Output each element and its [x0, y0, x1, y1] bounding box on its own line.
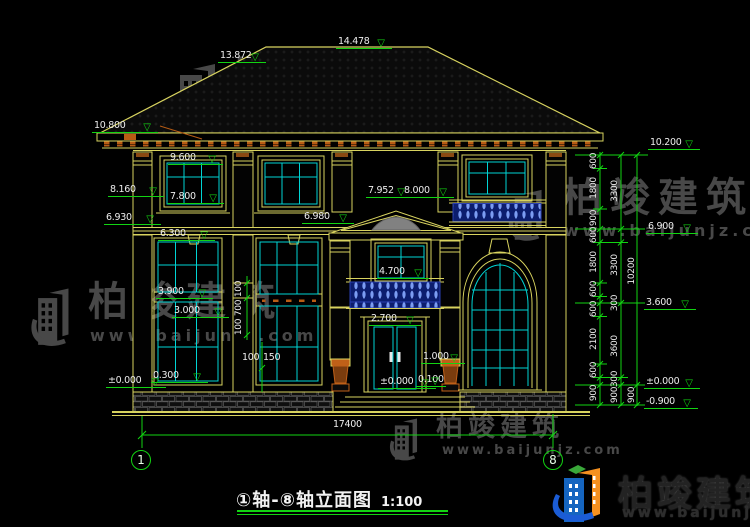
- elevation-marker: 4.700▽: [377, 259, 429, 279]
- level-triangle-icon: ▽: [683, 399, 691, 409]
- elevation-marker: ±0.000▽: [644, 369, 700, 389]
- baijun-color-logo-icon: [538, 464, 618, 526]
- elevation-drawing-canvas: 柏竣建筑 www.baijunjz.com 柏竣建筑 www.baijunjz.…: [0, 0, 750, 527]
- level-triangle-icon: ▽: [377, 39, 385, 49]
- dimension-label-vertical: 900: [627, 375, 637, 415]
- dimension-label-vertical: 300: [610, 283, 620, 323]
- level-triangle-icon: ▽: [339, 214, 347, 224]
- elevation-marker: 8.160▽: [108, 177, 164, 197]
- dimension-label-vertical: 100: [234, 307, 244, 347]
- elevation-marker: 6.900▽: [646, 214, 698, 234]
- elevation-marker: 2.700▽: [369, 306, 421, 326]
- elevation-marker: 13.872▽: [218, 43, 266, 63]
- level-triangle-icon: ▽: [414, 269, 422, 279]
- elevation-marker: 8.000▽: [402, 178, 454, 198]
- level-triangle-icon: ▽: [214, 308, 222, 318]
- title-underline: [237, 514, 448, 515]
- level-triangle-icon: ▽: [685, 140, 693, 150]
- level-triangle-icon: ▽: [251, 53, 259, 63]
- level-triangle-icon: ▽: [681, 300, 689, 310]
- dimension-label: 100: [242, 353, 259, 363]
- elevation-marker: 6.300▽: [158, 221, 215, 241]
- level-triangle-icon: ▽: [146, 215, 154, 225]
- elevation-marker: 3.600▽: [644, 290, 696, 310]
- elevation-marker: 10.800▽: [92, 113, 158, 133]
- brand-logo-url: www.baijunjz.com: [622, 505, 750, 521]
- elevation-marker: 7.800▽: [168, 184, 224, 204]
- dimension-label-vertical: 10200: [627, 251, 637, 291]
- dimension-label: 17400: [333, 420, 362, 430]
- level-triangle-icon: ▽: [439, 188, 447, 198]
- drawing-title-text: ①轴-⑧轴立面图: [236, 490, 372, 511]
- level-triangle-icon: ▽: [151, 378, 159, 388]
- dimension-label-vertical: 3300: [610, 171, 620, 211]
- elevation-marker: 6.930▽: [104, 205, 161, 225]
- elevation-marker: 9.600▽: [168, 145, 223, 165]
- level-triangle-icon: ▽: [208, 155, 216, 165]
- title-underline: [237, 510, 448, 512]
- elevation-marker: ±0.000▽: [106, 368, 166, 388]
- elevation-marker: 6.980▽: [302, 204, 354, 224]
- dimension-label-vertical: 3300: [610, 245, 620, 285]
- level-triangle-icon: ▽: [209, 194, 217, 204]
- level-triangle-icon: ▽: [406, 316, 414, 326]
- drawing-scale: 1:100: [381, 495, 422, 510]
- level-triangle-icon: ▽: [450, 354, 458, 364]
- drawing-title: ①轴-⑧轴立面图1:100: [236, 486, 422, 512]
- dimension-label-vertical: 900: [589, 373, 599, 413]
- elevation-marker: 10.200▽: [648, 130, 700, 150]
- level-triangle-icon: ▽: [200, 231, 208, 241]
- level-triangle-icon: ▽: [683, 224, 691, 234]
- elevation-marker: 14.478▽: [336, 29, 392, 49]
- elevation-marker: 1.000▽: [421, 344, 465, 364]
- elevation-marker: 3.900▽: [156, 279, 213, 299]
- level-triangle-icon: ▽: [193, 373, 201, 383]
- level-triangle-icon: ▽: [685, 379, 693, 389]
- annotation-layer: 13.872▽14.478▽10.800▽9.600▽8.160▽7.800▽6…: [0, 0, 750, 527]
- level-triangle-icon: ▽: [149, 187, 157, 197]
- level-triangle-icon: ▽: [431, 377, 439, 387]
- level-triangle-icon: ▽: [143, 123, 151, 133]
- elevation-marker: 0.100▽: [416, 367, 446, 387]
- axis-bubble: 1: [131, 450, 151, 470]
- elevation-marker: 3.000▽: [172, 298, 229, 318]
- brand-logo: 柏竣建筑 www.baijunjz.com: [538, 464, 618, 527]
- elevation-marker: -0.900▽: [644, 389, 698, 409]
- dimension-label: 150: [263, 353, 280, 363]
- dimension-label-vertical: 900: [610, 375, 620, 415]
